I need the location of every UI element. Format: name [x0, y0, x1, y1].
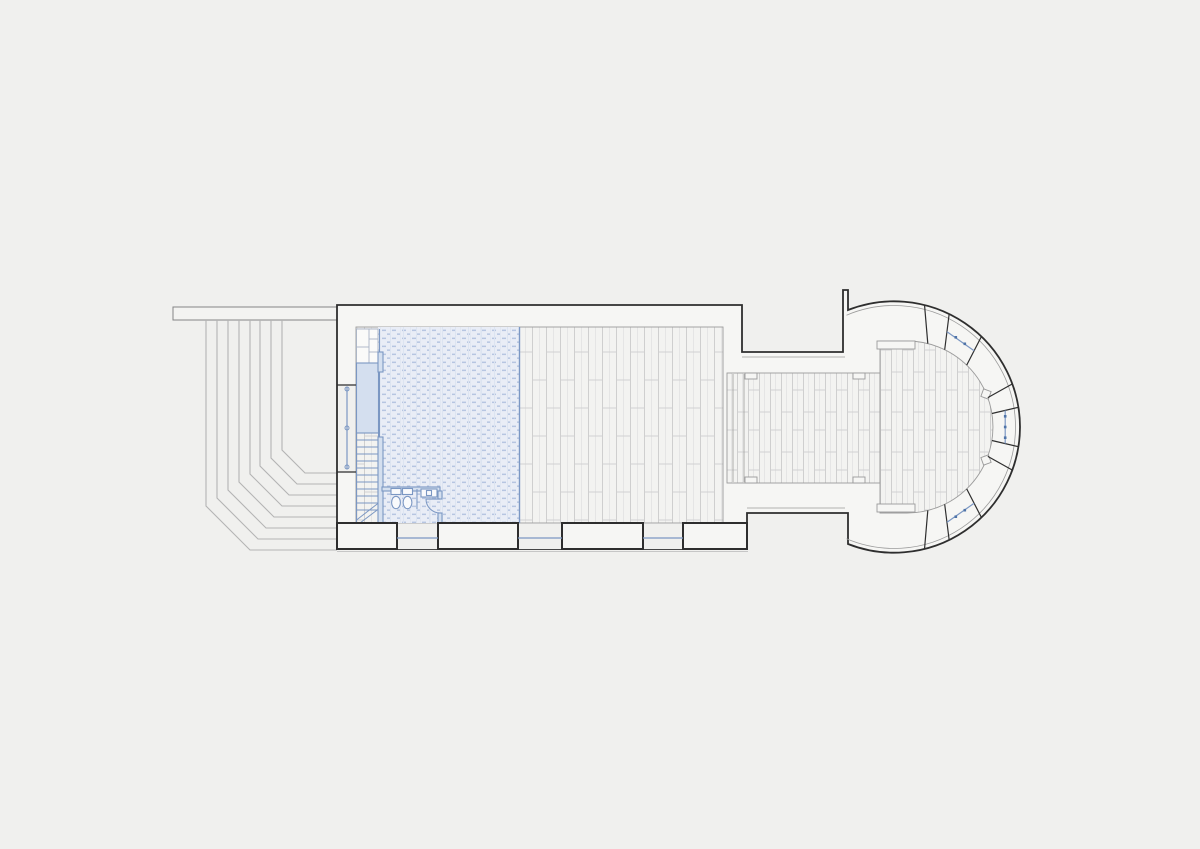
floor-plan-drawing [0, 0, 1200, 849]
terrace-wall [173, 307, 337, 320]
chancel-floor [727, 373, 880, 483]
apse-window-east [1004, 410, 1007, 443]
south-pier-2 [438, 523, 518, 549]
entrance-door [337, 385, 356, 472]
floor-plan-canvas [0, 0, 1200, 849]
toilet-1 [391, 489, 401, 509]
south-pier-4 [683, 523, 747, 549]
stair-landing [357, 329, 379, 363]
wc-east-wall-lower [438, 513, 442, 523]
washbasin [421, 489, 437, 497]
wc-east-wall-upper [438, 491, 442, 499]
south-window-opening-3 [643, 524, 683, 549]
chancel [727, 373, 880, 483]
south-window-opening-2 [518, 524, 562, 549]
stair-handrail-wall [378, 437, 383, 523]
stair-upper-flight [357, 363, 379, 433]
south-pier-1 [337, 523, 397, 549]
south-wall [337, 523, 748, 552]
south-pier-3 [562, 523, 643, 549]
stair-top-rail [378, 352, 383, 372]
toilet-2 [403, 489, 413, 509]
south-window-opening-1 [397, 524, 438, 549]
